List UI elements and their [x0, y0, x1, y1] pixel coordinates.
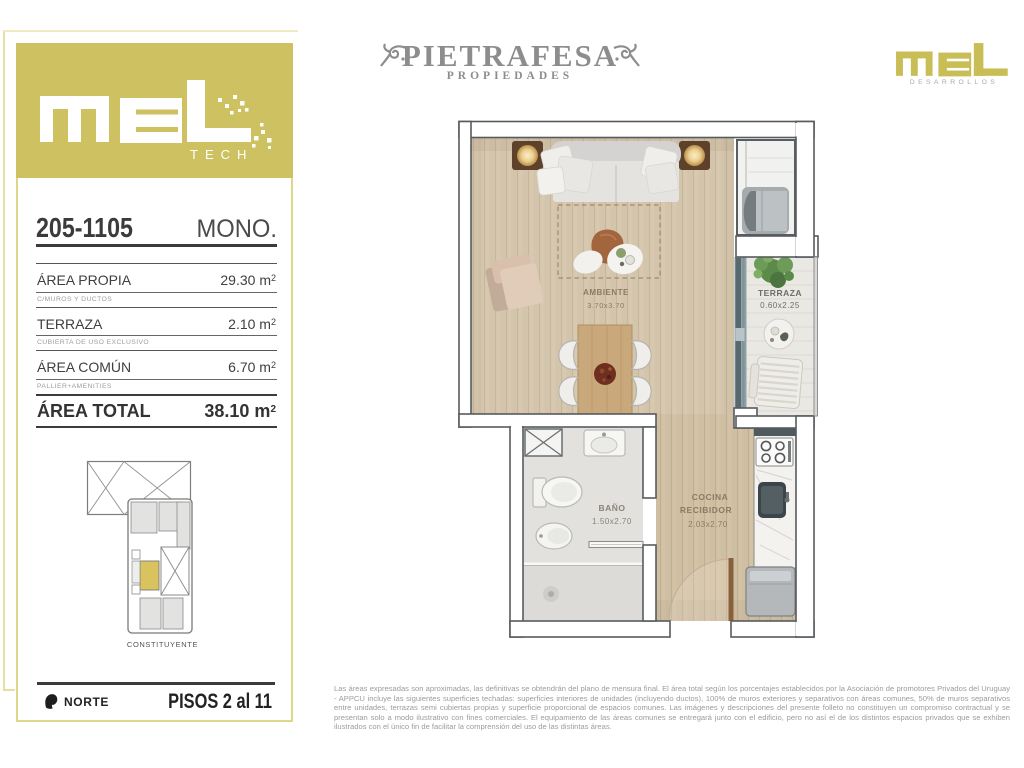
svg-text:RECIBIDOR: RECIBIDOR: [680, 505, 732, 515]
svg-text:AMBIENTE: AMBIENTE: [583, 288, 629, 297]
svg-text:TECH: TECH: [190, 147, 253, 162]
svg-text:TERRAZA: TERRAZA: [758, 288, 802, 298]
svg-text:COCINA: COCINA: [692, 492, 729, 502]
svg-text:1.50x2.70: 1.50x2.70: [592, 517, 632, 526]
svg-text:BAÑO: BAÑO: [598, 503, 625, 513]
svg-text:0.60x2.25: 0.60x2.25: [760, 301, 800, 310]
svg-text:2.03x2.70: 2.03x2.70: [688, 520, 728, 529]
svg-text:3.70x3.70: 3.70x3.70: [587, 301, 624, 310]
